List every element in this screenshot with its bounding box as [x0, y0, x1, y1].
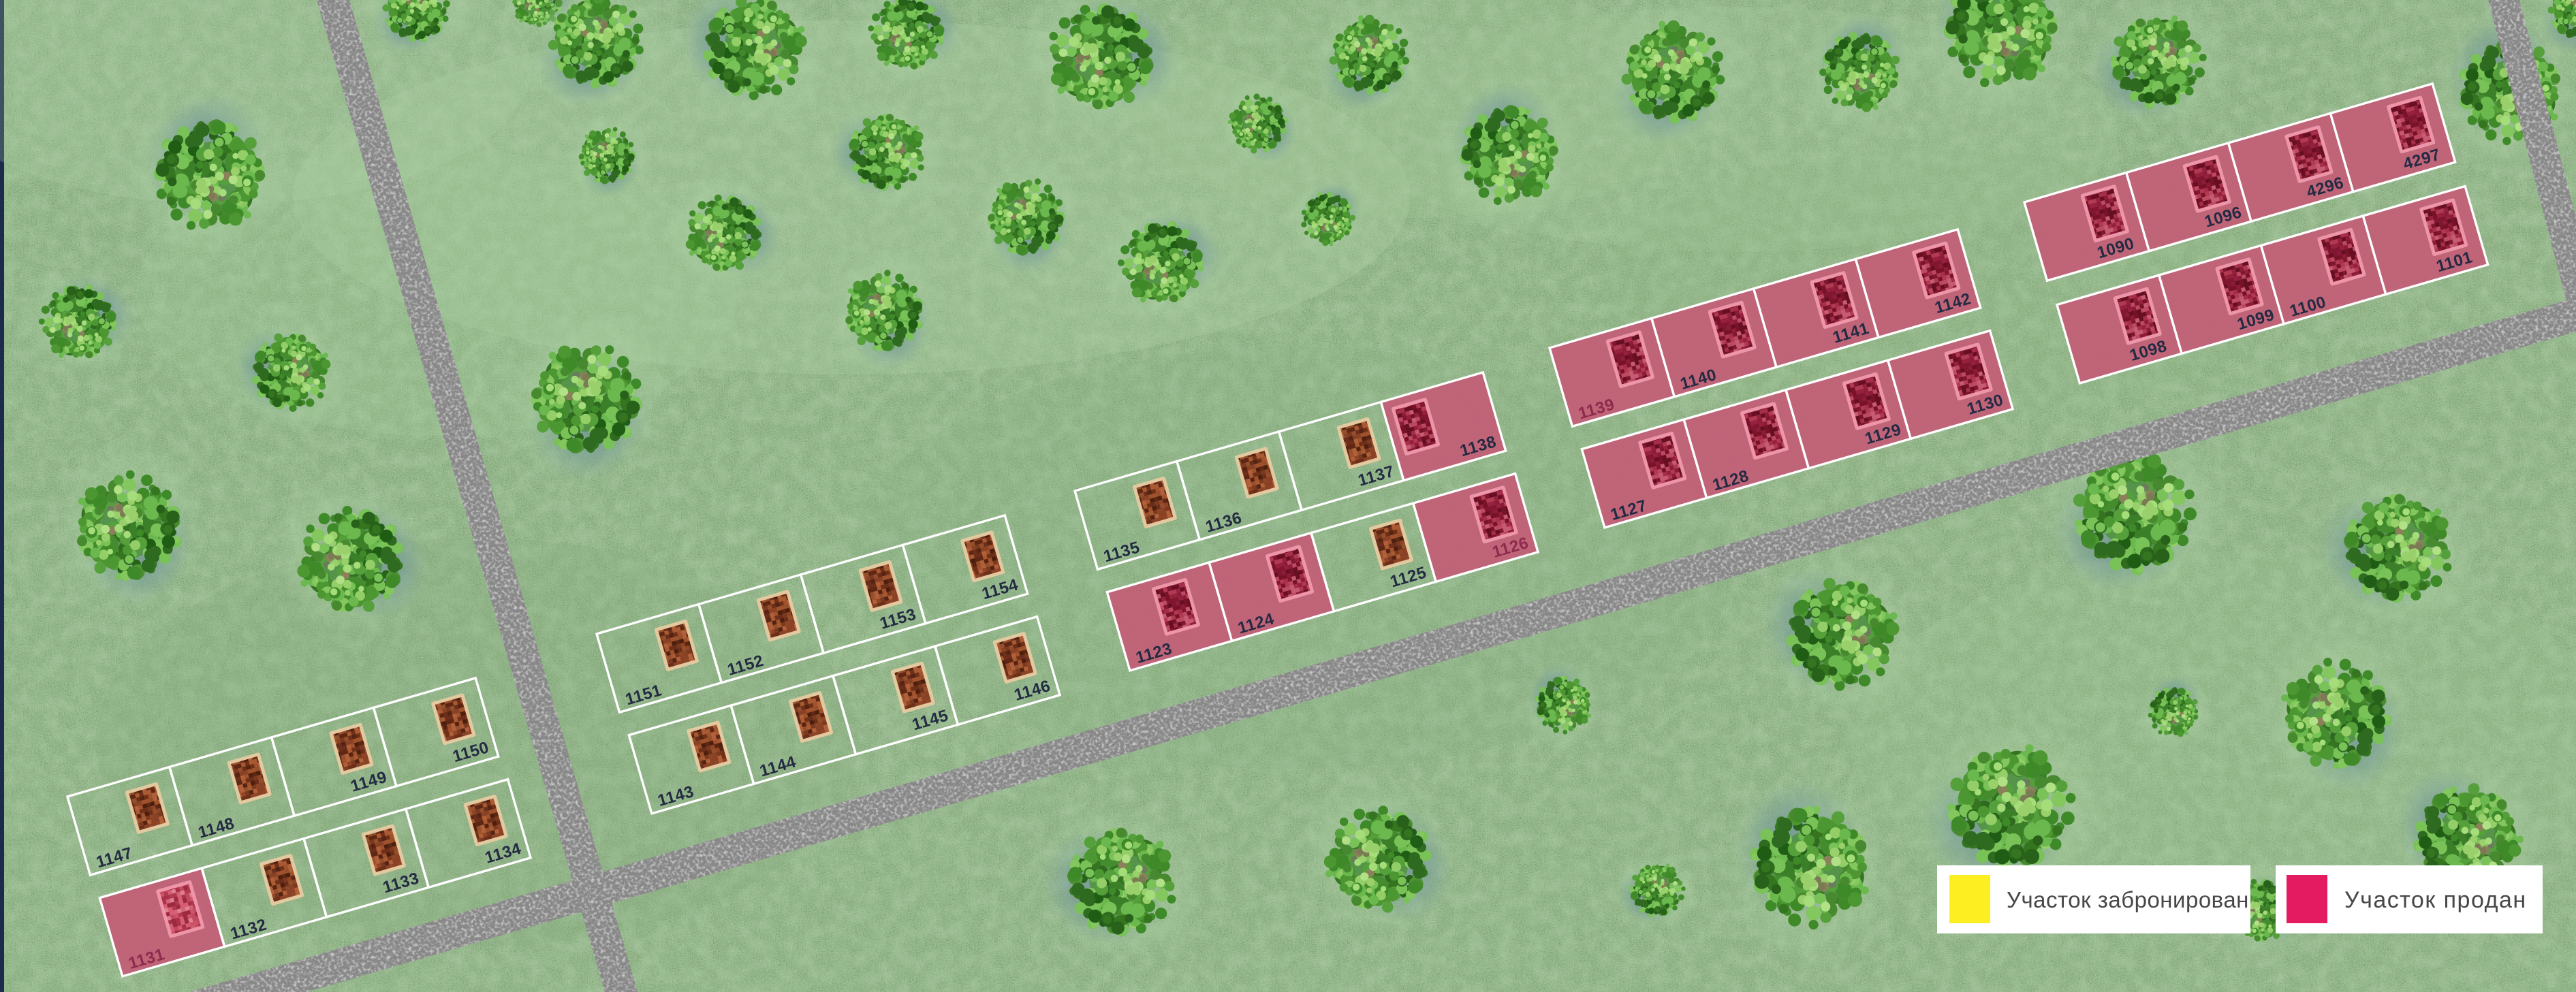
- svg-text:Участок забронирован: Участок забронирован: [2007, 887, 2249, 912]
- svg-text:Участок продан: Участок продан: [2344, 887, 2527, 913]
